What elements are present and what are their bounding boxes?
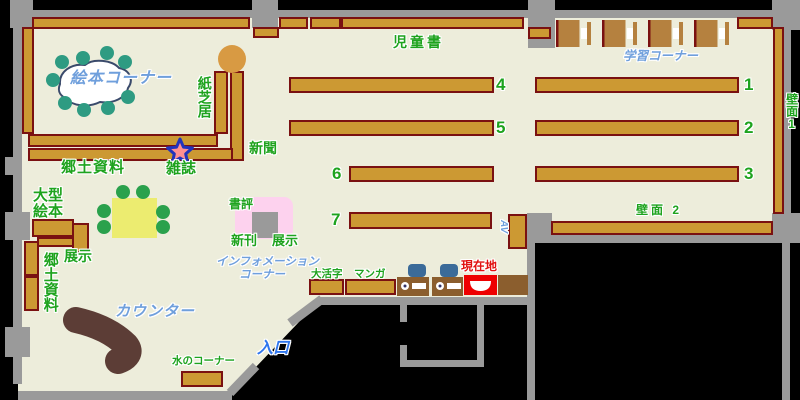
- wall-shelf-2: [552, 222, 772, 234]
- top-black-strip: [33, 0, 772, 10]
- label-picture-book-corner: 絵本コーナー: [70, 71, 172, 88]
- shelf-number-7: 7: [331, 211, 340, 229]
- chair: [408, 264, 426, 277]
- kyodo-shiryo-shelf: [29, 135, 217, 146]
- label-information-line1: インフォメーション: [216, 256, 319, 268]
- shelf-6: [350, 167, 493, 181]
- label-display-center: 展示: [272, 234, 298, 248]
- av-shelf: [509, 215, 526, 248]
- label-magazine: 雑誌: [166, 161, 196, 177]
- wall-shelf-1: [774, 28, 783, 213]
- library-floor-map: 児童書 紙芝居 新聞 雑誌 郷土資料 大型絵本 展示 郷土資料 書評 新刊 展示…: [0, 0, 800, 400]
- label-display-left: 展示: [64, 249, 92, 264]
- label-counter: カウンター: [115, 304, 195, 320]
- shelf-number-5: 5: [496, 119, 505, 137]
- return-shelf: [498, 275, 528, 295]
- label-av: AV: [498, 220, 509, 233]
- round-table: [218, 45, 246, 73]
- label-wall-1: 壁面1: [785, 93, 798, 131]
- shelf-number-2: 2: [744, 119, 753, 137]
- chair: [440, 264, 458, 277]
- label-local-materials-left: 郷土資料: [42, 252, 58, 312]
- shelf-2: [536, 121, 738, 135]
- label-wall-2: 壁面 2: [636, 204, 682, 217]
- shelf-5: [290, 121, 493, 135]
- shelf-3: [536, 167, 738, 181]
- label-large-print: 大活字: [311, 269, 343, 280]
- label-book-review: 書評: [229, 198, 253, 211]
- current-location-marker: [464, 275, 497, 295]
- manga-shelf: [346, 280, 395, 294]
- shelf-number-1: 1: [744, 76, 753, 94]
- label-information-line2: コーナー: [239, 269, 285, 281]
- label-childrens-books: 児童書: [393, 35, 444, 50]
- large-print-shelf: [310, 280, 343, 294]
- large-picture-book-shelf: [33, 220, 73, 236]
- water-corner-shelf: [182, 372, 222, 386]
- label-manga: マンガ: [354, 269, 386, 280]
- shelf-number-4: 4: [496, 76, 505, 94]
- shelf-1: [536, 78, 738, 92]
- label-study-corner: 学習コーナー: [623, 50, 698, 63]
- label-current-location: 現在地: [461, 260, 497, 273]
- label-newspaper: 新聞: [249, 141, 277, 156]
- shelf-number-6: 6: [332, 165, 341, 183]
- label-new-arrivals: 新刊: [231, 234, 257, 248]
- reading-table: [112, 198, 157, 238]
- label-local-materials-top: 郷土資料: [61, 160, 125, 176]
- label-water-corner: 水のコーナー: [172, 356, 235, 367]
- label-large-picture-books: 大型絵本: [33, 188, 63, 220]
- shelf-number-3: 3: [744, 165, 753, 183]
- kamishibai-shelf: [215, 72, 227, 133]
- shelf-4: [290, 78, 493, 92]
- label-kamishibai: 紙芝居: [197, 76, 212, 118]
- magazine-shelf: [29, 149, 232, 160]
- shelf-7: [350, 213, 491, 228]
- label-entrance: 入口: [257, 341, 289, 358]
